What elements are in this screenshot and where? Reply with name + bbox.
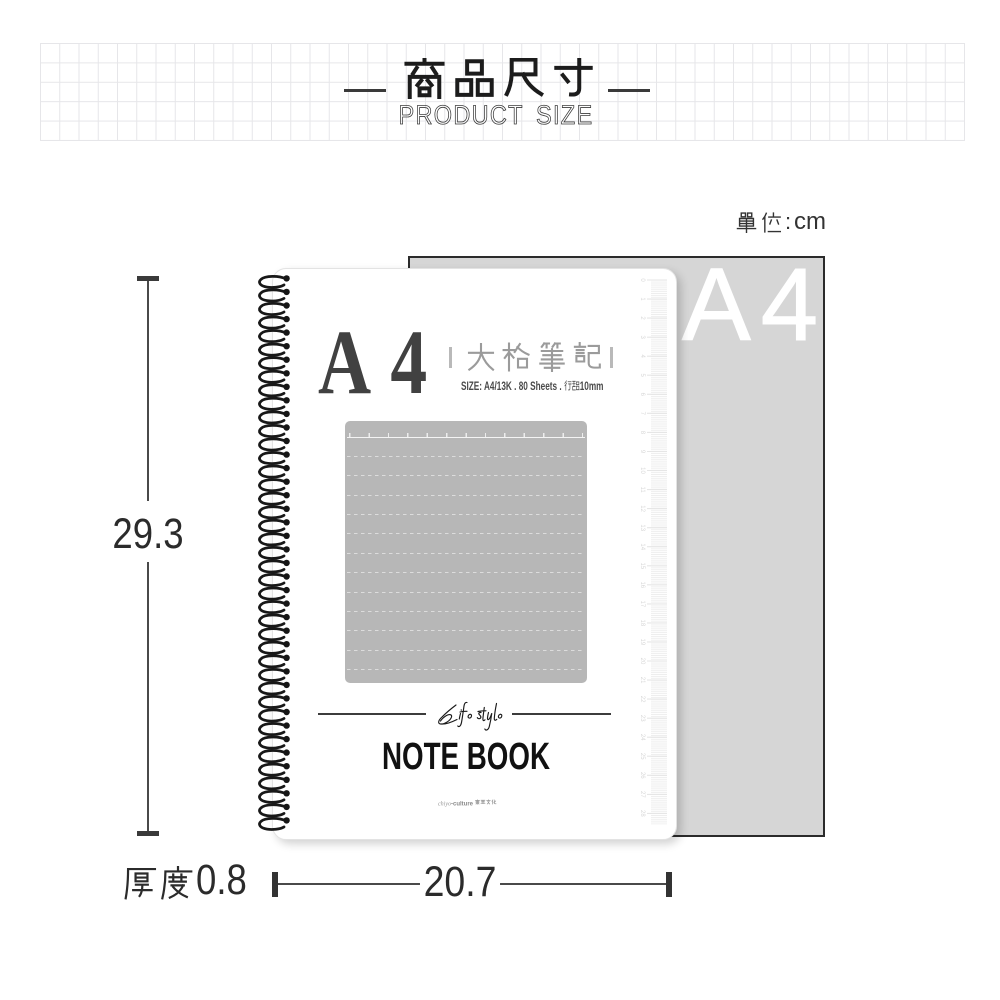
svg-text:12: 12 (639, 505, 645, 512)
svg-text:20: 20 (639, 658, 645, 665)
svg-text:5: 5 (639, 374, 645, 378)
svg-text:6: 6 (639, 393, 645, 397)
svg-text:17: 17 (639, 601, 645, 608)
svg-text:13: 13 (639, 524, 645, 531)
svg-text:16: 16 (639, 581, 645, 588)
svg-text:9: 9 (639, 450, 645, 454)
svg-text:14: 14 (639, 543, 645, 550)
svg-text:26: 26 (639, 772, 645, 779)
svg-text:2: 2 (639, 316, 645, 320)
svg-text:4: 4 (639, 355, 645, 359)
svg-text:22: 22 (639, 696, 645, 703)
svg-text:7: 7 (639, 412, 645, 416)
svg-text:28: 28 (639, 810, 645, 817)
svg-text:10: 10 (639, 467, 645, 474)
svg-text:25: 25 (639, 753, 645, 760)
svg-text:0: 0 (639, 278, 645, 282)
svg-text:8: 8 (639, 431, 645, 435)
svg-text:18: 18 (639, 620, 645, 627)
svg-text:1: 1 (639, 297, 645, 301)
svg-text:3: 3 (639, 336, 645, 340)
svg-text:11: 11 (639, 486, 645, 493)
svg-text:15: 15 (639, 562, 645, 569)
svg-text:21: 21 (639, 677, 645, 684)
svg-text:19: 19 (639, 639, 645, 646)
svg-text:24: 24 (639, 734, 645, 741)
svg-text:27: 27 (639, 791, 645, 798)
svg-text:23: 23 (639, 715, 645, 722)
